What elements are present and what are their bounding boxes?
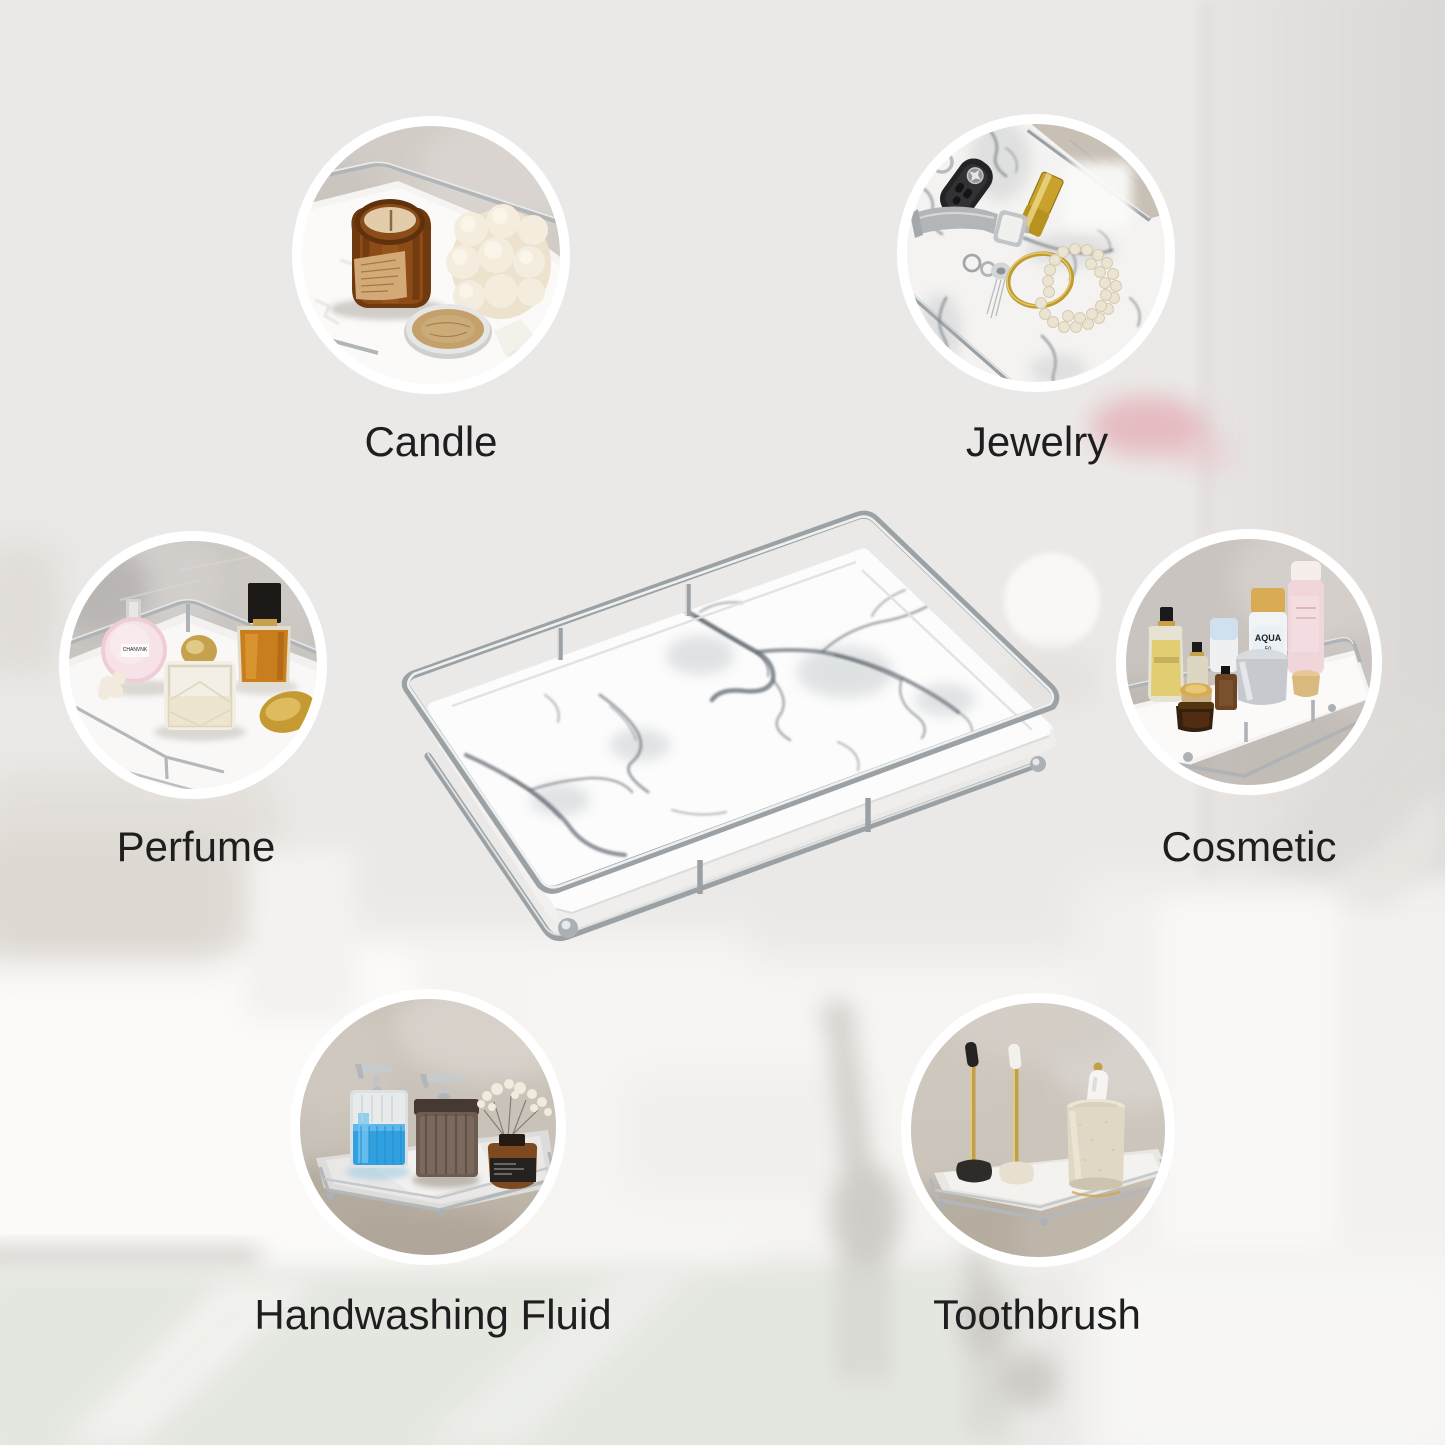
svg-text:Candle: Candle (364, 418, 497, 465)
svg-text:Handwashing Fluid: Handwashing Fluid (254, 1291, 611, 1338)
svg-text:Cosmetic: Cosmetic (1161, 823, 1336, 870)
svg-text:Toothbrush: Toothbrush (933, 1291, 1141, 1338)
svg-text:AQUA: AQUA (1255, 633, 1282, 643)
svg-text:Jewelry: Jewelry (966, 418, 1108, 465)
svg-text:CHANVNK: CHANVNK (123, 647, 148, 653)
svg-text:Perfume: Perfume (117, 823, 276, 870)
